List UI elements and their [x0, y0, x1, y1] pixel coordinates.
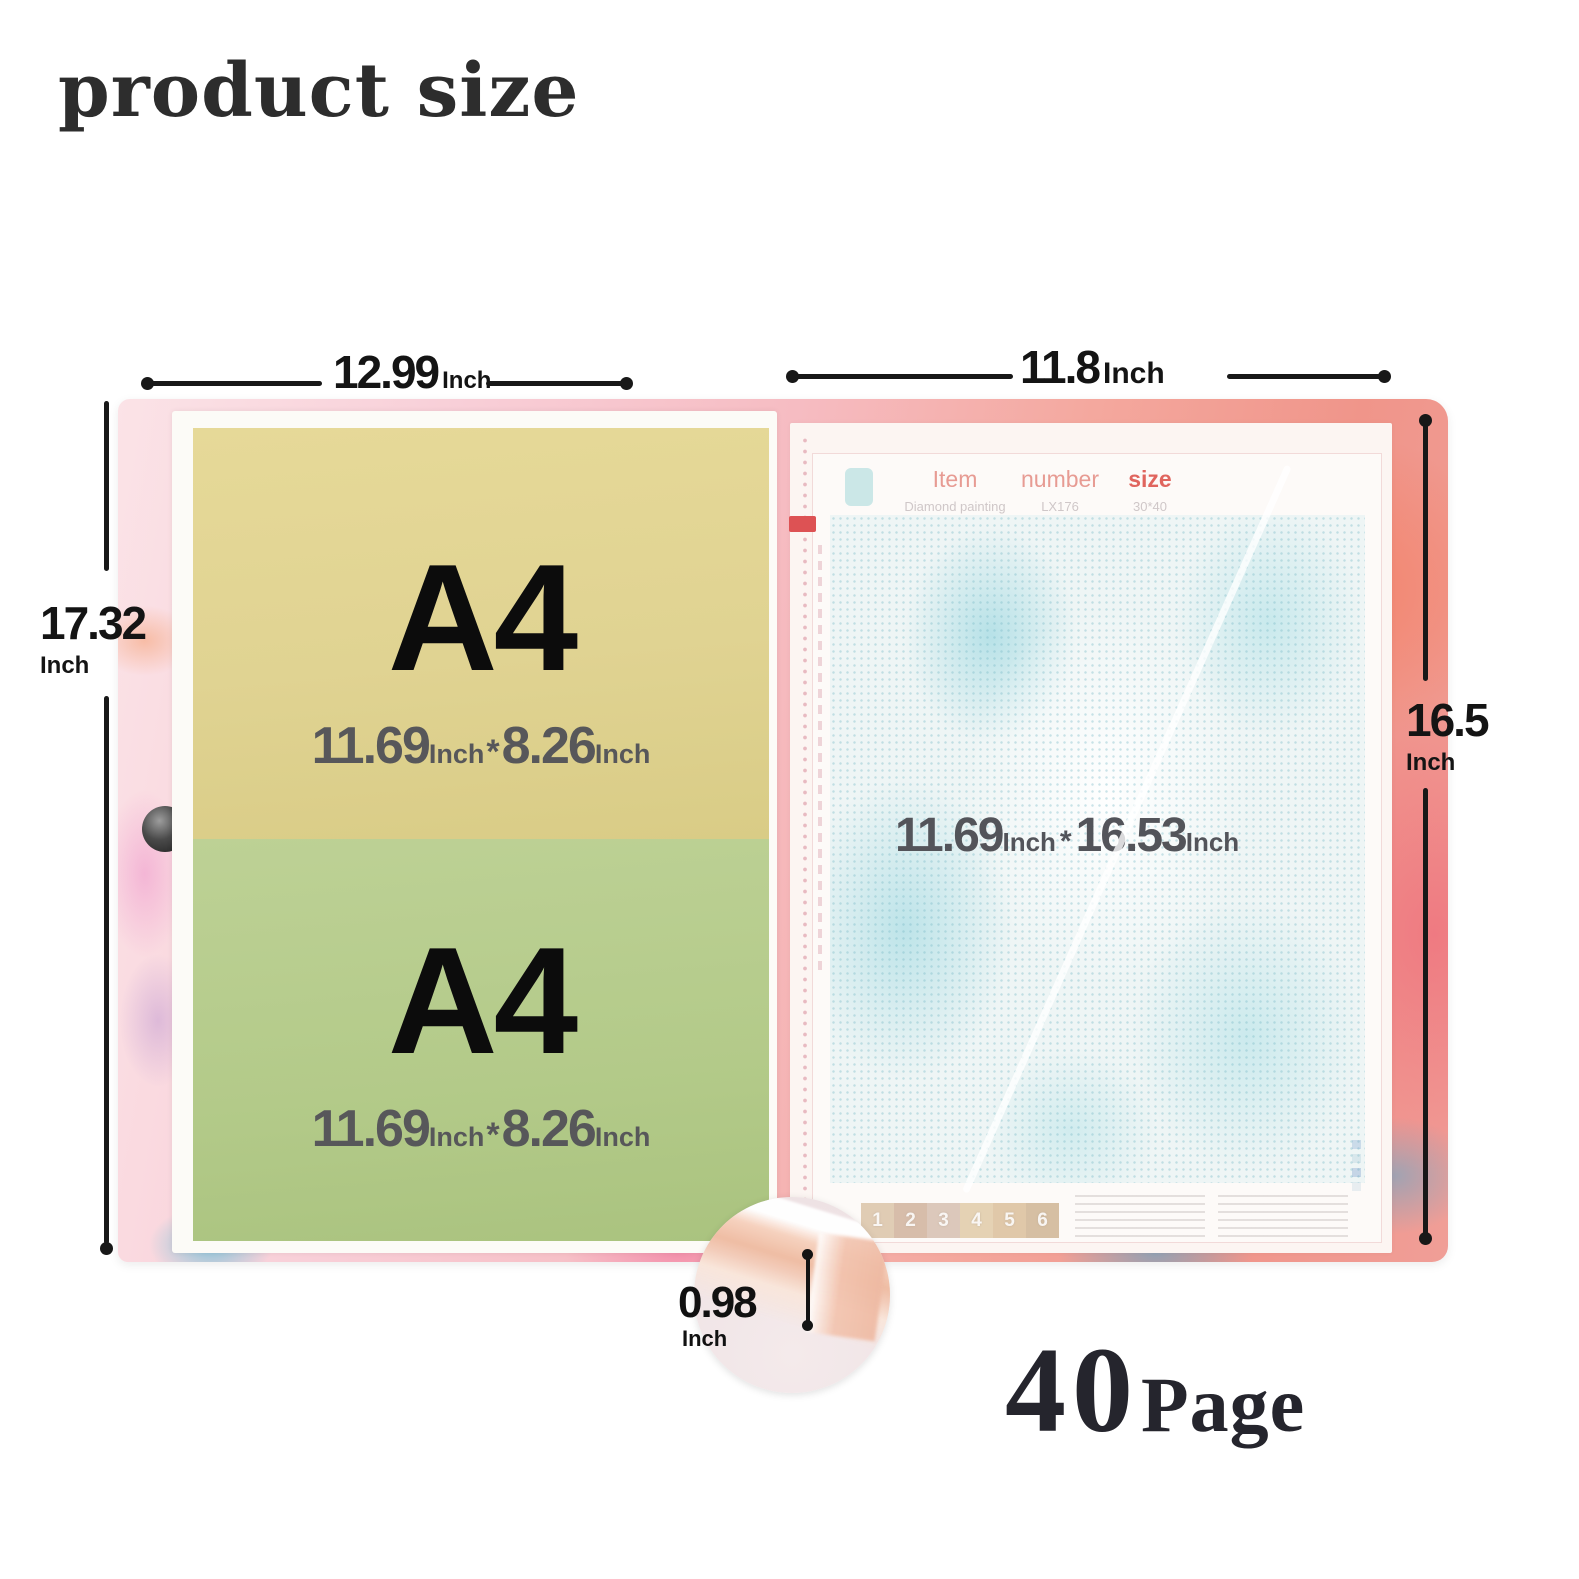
canvas-dimensions: 11.69Inch*16.53Inch [895, 812, 1239, 860]
instructions-text-block [1075, 1195, 1205, 1241]
spine-dim-bottom-dot [802, 1320, 813, 1331]
value-number: LX176 [1015, 499, 1105, 514]
dim-right-label: 16.5 Inch [1406, 697, 1488, 775]
swatch-4: 4 [960, 1203, 993, 1238]
dim-right-end-dot [1419, 1232, 1432, 1245]
swatch-2: 2 [894, 1203, 927, 1238]
canvas-width: 11.69 [895, 812, 1002, 860]
page-title: product size [58, 48, 580, 134]
dim-topleft-end-dot [620, 377, 633, 390]
spine-end-face [805, 1233, 888, 1342]
canvas-header-table: Item number size Diamond painting LX176 … [895, 466, 1195, 514]
dim-topright-line-a [795, 374, 1013, 379]
spine-dim-line [806, 1258, 810, 1322]
swatch-3: 3 [927, 1203, 960, 1238]
dim-left-label: 17.32 Inch [40, 600, 145, 678]
a4-top-height: 8.26 [502, 720, 595, 772]
canvas-logo [845, 468, 873, 506]
dim-right-line-b [1423, 788, 1428, 1238]
instructions-text-block-2 [1218, 1195, 1348, 1241]
product-size-infographic: product size A4 11.69Inch*8.26Inch A4 11… [0, 0, 1579, 1579]
page-count-number: 40 [1005, 1330, 1139, 1452]
dim-topleft-line-b [486, 381, 626, 386]
vertical-text-strip [818, 545, 822, 975]
a4-bottom-dimensions: 11.69Inch*8.26Inch [312, 1103, 651, 1155]
header-number: number [1015, 466, 1105, 493]
page-count-label: Page [1141, 1366, 1305, 1444]
dim-topleft-line-a [150, 381, 322, 386]
dim-topright-label: 11.8 Inch [1020, 344, 1165, 390]
a4-sheet-bottom: A4 11.69Inch*8.26Inch [193, 839, 769, 1241]
page-count: 40 Page [1005, 1330, 1305, 1452]
symbol-legend [1352, 1140, 1361, 1191]
header-size: size [1105, 466, 1195, 493]
dim-right-line-a [1423, 424, 1428, 681]
dim-topleft-label: 12.99 Inch [333, 349, 491, 395]
a4-bottom-height: 8.26 [502, 1103, 595, 1155]
red-tag [789, 516, 816, 532]
swatch-6: 6 [1026, 1203, 1059, 1238]
a4-top-width: 11.69 [312, 720, 429, 772]
spine-thickness-unit: Inch [682, 1326, 727, 1352]
perforation-strip [794, 432, 810, 1246]
a4-top-label: A4 [388, 542, 574, 694]
a4-sheet-top: A4 11.69Inch*8.26Inch [193, 428, 769, 839]
swatch-5: 5 [993, 1203, 1026, 1238]
spine-thickness-value: 0.98 [678, 1278, 756, 1328]
a4-bottom-label: A4 [388, 925, 574, 1077]
color-swatch-row: 1 2 3 4 5 6 [861, 1203, 1059, 1238]
a4-bottom-width: 11.69 [312, 1103, 429, 1155]
dim-left-line-a [104, 401, 109, 571]
value-size: 30*40 [1105, 499, 1195, 514]
dim-topright-line-b [1227, 374, 1382, 379]
header-item: Item [895, 466, 1015, 493]
value-item: Diamond painting [895, 499, 1015, 514]
dim-left-end-dot [100, 1242, 113, 1255]
dim-left-line-b [104, 696, 109, 1244]
dim-topright-end-dot [1378, 370, 1391, 383]
a4-top-dimensions: 11.69Inch*8.26Inch [312, 720, 651, 772]
